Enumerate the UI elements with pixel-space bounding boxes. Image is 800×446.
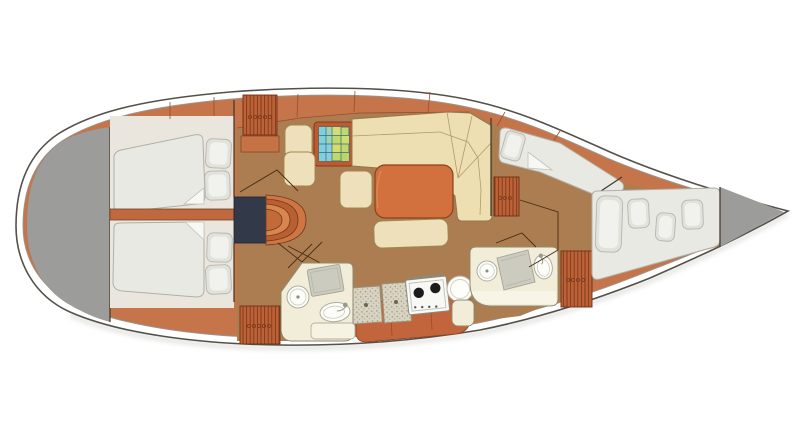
shower-seat [307,264,344,296]
pillow [627,198,649,228]
chart-table [314,122,354,166]
seat-cushion [452,300,474,326]
nav-seat-cushion [284,152,315,186]
stool [340,171,372,208]
pillow [207,233,233,263]
pillow [655,212,676,241]
galley-sink [447,276,473,302]
locker [240,306,280,344]
locker [494,177,519,216]
pillow [204,171,230,201]
pillow [205,264,231,294]
cabin-divider [110,209,234,220]
vanity-cabinet [311,323,355,339]
pillow [205,138,231,168]
storage-locker [241,95,279,152]
toilet [287,286,309,308]
engine-box [234,197,266,243]
pillow [595,196,623,253]
pillow [682,200,704,230]
bow-deck [720,187,784,247]
bench-seat [374,219,449,249]
stove [405,274,450,315]
dining-table [375,165,453,218]
boat-floor-plan-page: Sailboat interior layout plan — top view [0,0,800,446]
boat-floor-plan: Sailboat interior layout plan — top view [0,0,800,446]
companionway [234,195,306,245]
toilet [477,261,497,281]
head-ledge [472,291,556,304]
locker [561,251,592,307]
aft-berth-starboard [113,222,204,297]
aft-cabins [110,100,234,308]
